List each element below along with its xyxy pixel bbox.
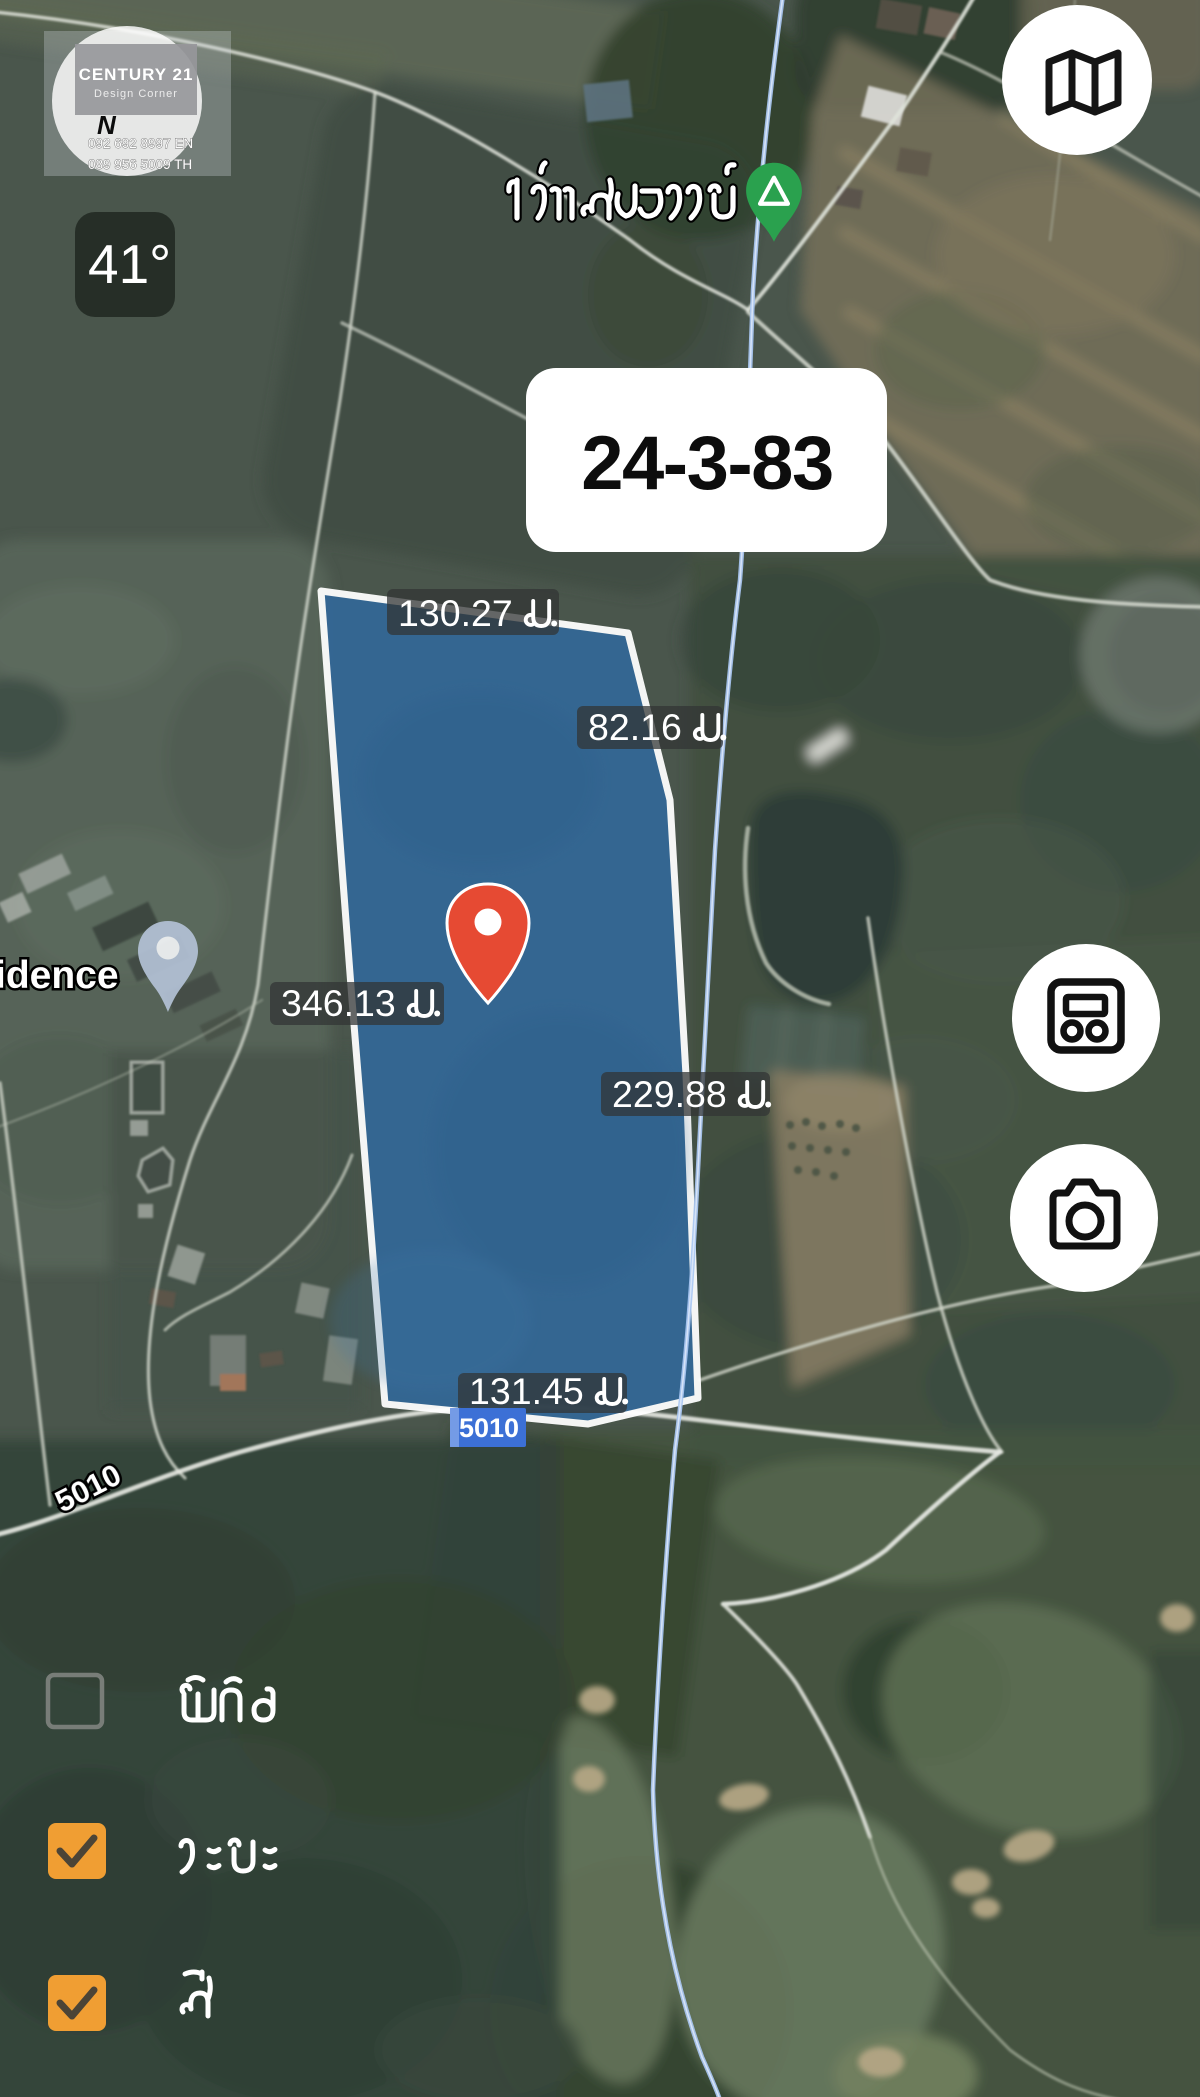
svg-text:092 692 8997 EN: 092 692 8997 EN bbox=[88, 136, 193, 151]
svg-text:41°: 41° bbox=[88, 233, 171, 295]
svg-text:5010: 5010 bbox=[459, 1413, 519, 1443]
svg-text:229.88: 229.88 bbox=[612, 1073, 727, 1115]
svg-text:idence: idence bbox=[0, 954, 119, 997]
svg-text:130.27: 130.27 bbox=[398, 592, 513, 634]
svg-text:131.45: 131.45 bbox=[469, 1370, 584, 1412]
svg-text:089 956 5009 TH: 089 956 5009 TH bbox=[88, 157, 192, 172]
svg-text:Design Corner: Design Corner bbox=[94, 88, 178, 100]
svg-text:82.16: 82.16 bbox=[588, 706, 682, 748]
svg-text:346.13: 346.13 bbox=[281, 982, 396, 1024]
svg-text:CENTURY 21: CENTURY 21 bbox=[79, 65, 194, 84]
svg-text:24-3-83: 24-3-83 bbox=[581, 421, 832, 506]
